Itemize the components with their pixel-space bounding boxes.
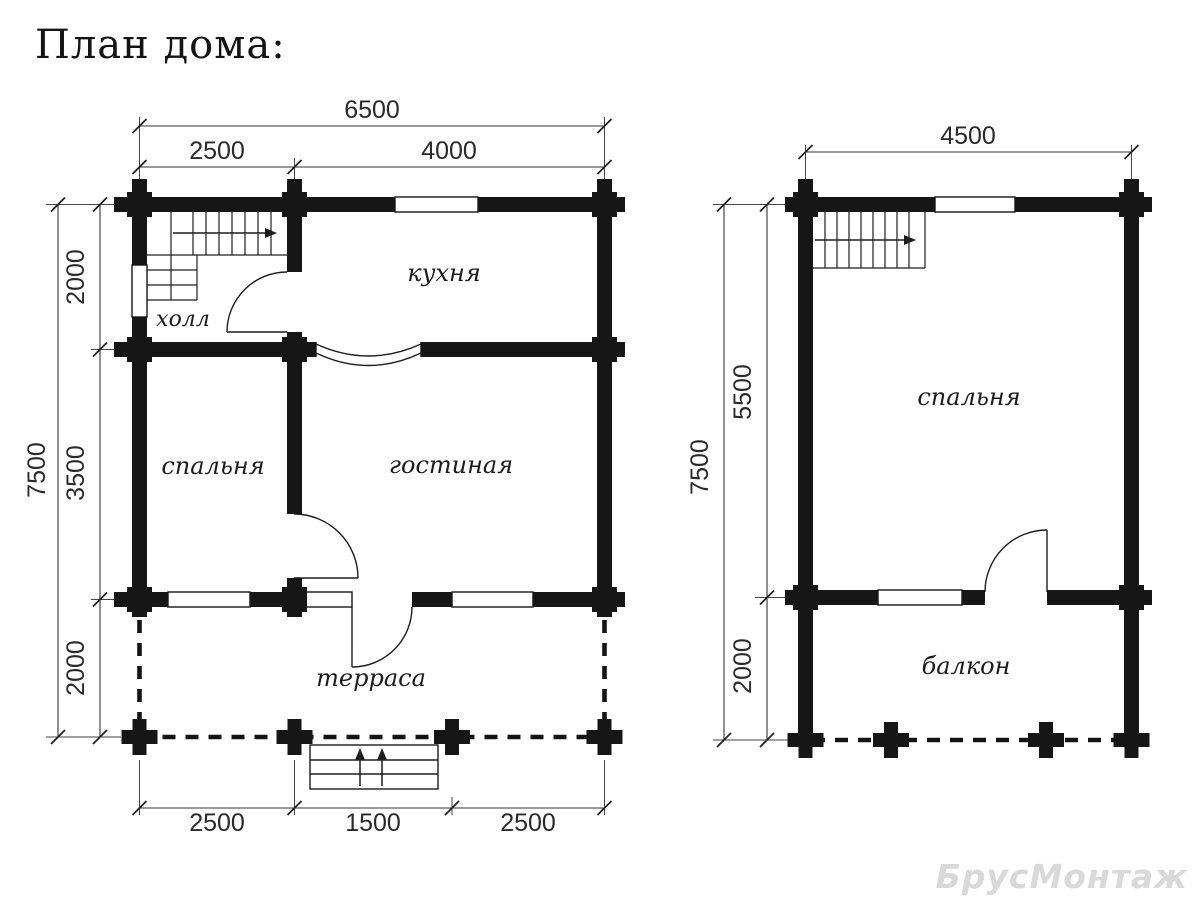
room-label-balcony: балкон [922, 652, 1011, 680]
floor2-stairs [813, 212, 925, 268]
dim-f1-width-total: 6500 [344, 96, 400, 124]
dim-f1-width-right: 4000 [421, 137, 477, 165]
room-label-kitchen: кухня [407, 259, 481, 287]
dim-f1-height-total: 7500 [23, 442, 51, 498]
floor1-walls [132, 197, 612, 607]
arch-opening [316, 342, 421, 366]
dim-f1-height-top: 2000 [62, 249, 90, 305]
door-arc-bedroom [294, 514, 358, 578]
window-bedroom2-bottom [878, 590, 962, 605]
door-arc-terrace [352, 607, 412, 667]
room-label-hall: холл [156, 307, 210, 332]
floor-plan-drawing: План дома: 6500 2500 4000 7500 2000 3500… [0, 0, 1200, 900]
window-living-right [452, 592, 533, 607]
dim-f1-bottom-center: 1500 [345, 809, 401, 837]
watermark-logo: БрусМонтаж [936, 857, 1189, 896]
stairs-direction-arrow-icon [904, 235, 916, 245]
dim-f2-width-total: 4500 [940, 122, 996, 150]
floor1-room-labels: холл кухня спальня гостиная терраса [156, 259, 513, 692]
room-label-terrace: терраса [316, 664, 426, 692]
dim-f1-height-bottom: 2000 [62, 640, 90, 696]
door-arc-hall [227, 272, 287, 332]
floor2-room-labels: спальня балкон [917, 383, 1020, 680]
dim-f2-height-bottom: 2000 [729, 638, 757, 694]
dim-f1-height-middle: 3500 [62, 445, 90, 501]
window-bedroom [168, 592, 250, 607]
room-label-bedroom: спальня [161, 452, 264, 480]
floor-plan-page: План дома: 6500 2500 4000 7500 2000 3500… [0, 0, 1200, 900]
dim-f1-bottom-right: 2500 [500, 809, 556, 837]
page-title: План дома: [35, 22, 286, 68]
room-label-bedroom2: спальня [917, 383, 1020, 411]
dim-f1-width-left: 2500 [189, 137, 245, 165]
window-bedroom2-top [935, 197, 1015, 212]
window-hall [132, 265, 147, 317]
floor1-dimension-lines [46, 117, 612, 815]
window-living-left [303, 592, 352, 607]
dim-f1-bottom-left: 2500 [189, 809, 245, 837]
floor2-doors [985, 530, 1047, 592]
floor1-stairs [147, 212, 287, 300]
door-arc-balcony [985, 530, 1047, 592]
dim-f2-height-top: 5500 [729, 364, 757, 420]
floor1-entrance-steps [310, 745, 438, 789]
window-kitchen [395, 197, 478, 212]
room-label-living-room: гостиная [389, 451, 513, 479]
dim-f2-height-total: 7500 [686, 439, 714, 495]
